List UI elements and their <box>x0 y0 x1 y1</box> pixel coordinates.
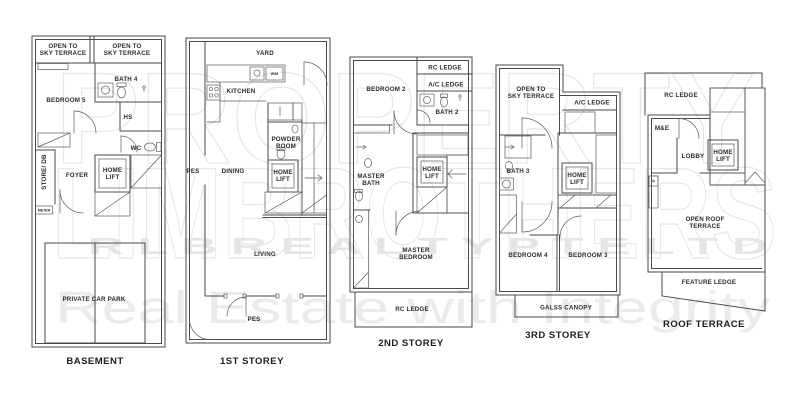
label-bath2: BATH 2 <box>435 109 458 116</box>
label-kitchen: KITCHEN <box>227 88 256 95</box>
label-open-sky-left-1: OPEN TO <box>48 43 77 50</box>
label-wm: W/M <box>271 72 278 76</box>
label-master-bedroom-1: MASTER <box>402 247 430 254</box>
label-me: M&E <box>655 125 669 132</box>
label-feature-ledge: FEATURE LEDGE <box>682 279 736 286</box>
watermark: PROPERTY LIMBROTHERS R L B R E A L T Y P… <box>52 45 777 333</box>
label-home-lift-1: HOME <box>567 172 586 179</box>
label-meter: METER <box>38 209 51 213</box>
label-home-lift-1: HOME <box>422 166 441 173</box>
label-open-sky-right-1: OPEN TO <box>112 43 141 50</box>
title-third-storey: 3RD STOREY <box>525 330 591 341</box>
label-master-bath-2: BATH <box>362 180 380 187</box>
label-car-park: PRIVATE CAR PARK <box>62 296 125 303</box>
label-bedroom5: BEDROOM 5 <box>46 97 86 104</box>
label-glass-canopy: GALSS CANOPY <box>540 305 593 312</box>
label-bath4: BATH 4 <box>114 76 137 83</box>
label-open-roof-1: OPEN ROOF <box>686 216 725 223</box>
label-living: LIVING <box>254 251 276 258</box>
label-rc-ledge-bottom: RC LEDGE <box>395 306 429 313</box>
label-pes-bottom: PES <box>248 316 261 323</box>
label-open-sky-2: SKY TERRACE <box>508 93 554 100</box>
label-open-sky-right-2: SKY TERRACE <box>104 50 150 57</box>
label-bedroom3: BEDROOM 3 <box>568 252 608 259</box>
label-home-lift-1: HOME <box>713 149 732 156</box>
label-home-lift-2: LIFT <box>570 179 584 186</box>
label-home-lift-2: LIFT <box>425 173 439 180</box>
title-first-storey: 1ST STOREY <box>220 356 284 367</box>
label-rc-ledge: RC LEDGE <box>664 92 698 99</box>
label-home-lift-2: LIFT <box>106 174 120 181</box>
label-yard: YARD <box>256 50 274 57</box>
label-master-bath-1: MASTER <box>357 173 385 180</box>
label-bath3: BATH 3 <box>506 168 529 175</box>
label-pes-left: PES <box>187 168 200 175</box>
floorplan-canvas: PROPERTY LIMBROTHERS R L B R E A L T Y P… <box>0 0 800 408</box>
label-lobby: LOBBY <box>682 153 705 160</box>
label-hs: HS <box>124 114 133 121</box>
label-powder-2: ROOM <box>276 143 296 150</box>
label-store-db: STORE/ DB <box>41 154 48 190</box>
label-home-lift-1: HOME <box>273 169 292 176</box>
title-roof-terrace: ROOF TERRACE <box>663 319 745 330</box>
label-bedroom2: BEDROOM 2 <box>366 86 406 93</box>
label-ac-ledge: A/C LEDGE <box>428 82 464 89</box>
label-dining: DINING <box>222 168 245 175</box>
label-ac-ledge: A/C LEDGE <box>574 100 610 107</box>
floorplan-sheet: PROPERTY LIMBROTHERS R L B R E A L T Y P… <box>0 0 800 408</box>
label-wc: WC <box>131 145 142 152</box>
label-open-sky-left-2: SKY TERRACE <box>40 50 86 57</box>
label-open-sky-1: OPEN TO <box>516 86 545 93</box>
title-basement: BASEMENT <box>66 356 123 367</box>
label-home-lift-2: LIFT <box>716 156 730 163</box>
label-home-lift-2: LIFT <box>276 176 290 183</box>
label-foyer: FOYER <box>66 172 89 179</box>
label-master-bedroom-2: BEDROOM <box>399 254 433 261</box>
label-powder-1: POWDER <box>271 136 300 143</box>
label-open-roof-2: TERRACE <box>689 223 720 230</box>
title-second-storey: 2ND STOREY <box>378 338 444 349</box>
label-rc-ledge-top: RC LEDGE <box>428 65 462 72</box>
label-bedroom4: BEDROOM 4 <box>508 252 548 259</box>
label-home-lift-1: HOME <box>103 167 122 174</box>
